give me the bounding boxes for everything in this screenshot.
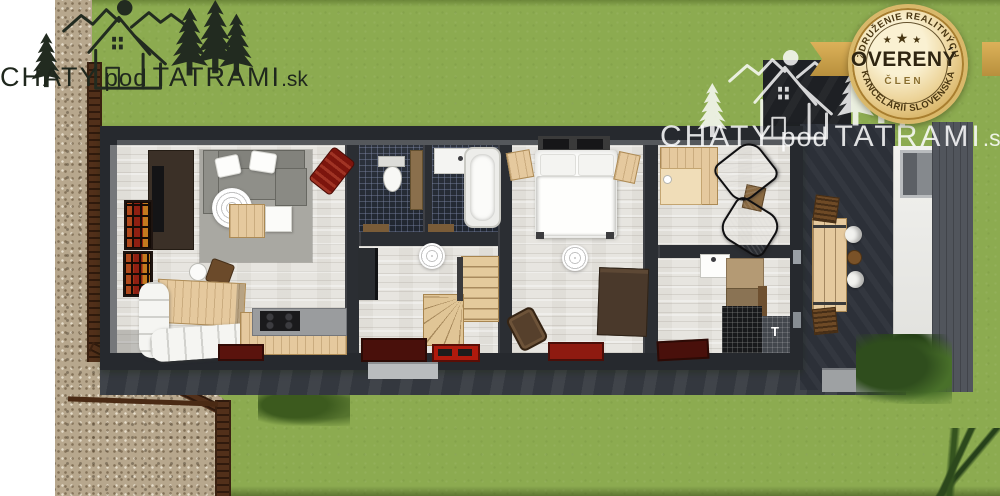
sun-icon [783,50,798,65]
entry-tile [722,306,762,353]
doormat [548,342,604,361]
star-icon: ★ [883,35,896,46]
coffee-table [229,204,265,238]
badge-ribbon [982,42,1000,76]
headboard-cushion [577,139,603,149]
logo-word-chaty: CHATY [660,120,774,153]
staircase-flight [461,256,499,322]
outdoor-stool [847,271,864,288]
duvet [536,176,616,236]
staircase-winder [423,294,464,346]
desk-pad [660,168,702,205]
nightstand [506,149,534,181]
outdoor-stool [845,226,862,243]
throw-pillow [249,150,278,174]
doormat [432,344,480,362]
bed-pillow [578,154,614,176]
logo-primary-text: CHATYpodTATRAMI.sk [0,62,308,93]
outdoor-dining-table [812,218,847,312]
faucet-icon [711,257,716,262]
badge-title: OVERENÝ [838,48,970,72]
dining-table [156,279,246,328]
desk-lamp-icon [664,176,671,183]
partition-wall [345,145,359,353]
red-bookshelf [124,200,153,250]
logo-word-sk: .sk [281,68,308,91]
bed-foot [536,232,544,239]
property-floorplan-render: T [0,0,1000,496]
stair-newel [457,257,463,301]
sofa-chaise [275,168,307,206]
outdoor-chair [812,307,839,335]
partition-wall [423,145,432,232]
tv-screen [152,166,164,232]
badge-stars: ★★★ [838,30,970,48]
stove-niche [358,248,378,300]
wall-inner-face [110,145,117,353]
membership-badge: ZDRUŽENIE REALITNÝCH KANCELÁRIÍ SLOVENSK… [838,0,1000,126]
bathtub-basin [470,154,495,221]
logo-word-tatrami: TATRAMI [153,62,282,92]
logo-word-pod: pod [105,65,148,92]
doormat [657,339,710,362]
shelf-grid [126,202,151,248]
bed-foot [606,232,614,239]
star-icon: ★ [896,30,913,46]
outdoor-chair [812,194,839,223]
bed-pillow [540,154,576,176]
side-table [265,206,292,232]
garden-fence [215,400,231,496]
cooktop [260,311,300,331]
outdoor-stool-wood [847,250,862,265]
star-icon: ★ [912,35,925,46]
logo-word-chaty: CHATY [0,62,100,92]
ceiling-lamp-icon [419,243,445,269]
sun-icon [117,0,132,15]
wardrobe [597,267,649,337]
facade-opening [793,312,801,328]
entry-step [368,362,438,379]
wc-shelf [410,150,423,210]
door-threshold [363,224,389,232]
planter-shrubs [856,334,952,404]
logo-word-pod: pod [780,122,828,152]
mountains-icon [131,13,185,28]
ornamental-grass [912,428,1000,496]
kitchen-mat [218,344,264,361]
ceiling-lamp-icon [562,245,588,271]
logo-word-sk: .sk [983,125,1000,151]
headboard-cushion [543,139,569,149]
doormat [361,338,427,362]
faucet-icon [458,156,463,161]
badge-subtitle: ČLEN [838,76,970,87]
bathroom-sink [434,148,468,174]
entry-marking: T [766,324,784,340]
door-threshold [428,224,454,232]
bathtub [464,147,501,228]
facade-opening [793,250,801,264]
